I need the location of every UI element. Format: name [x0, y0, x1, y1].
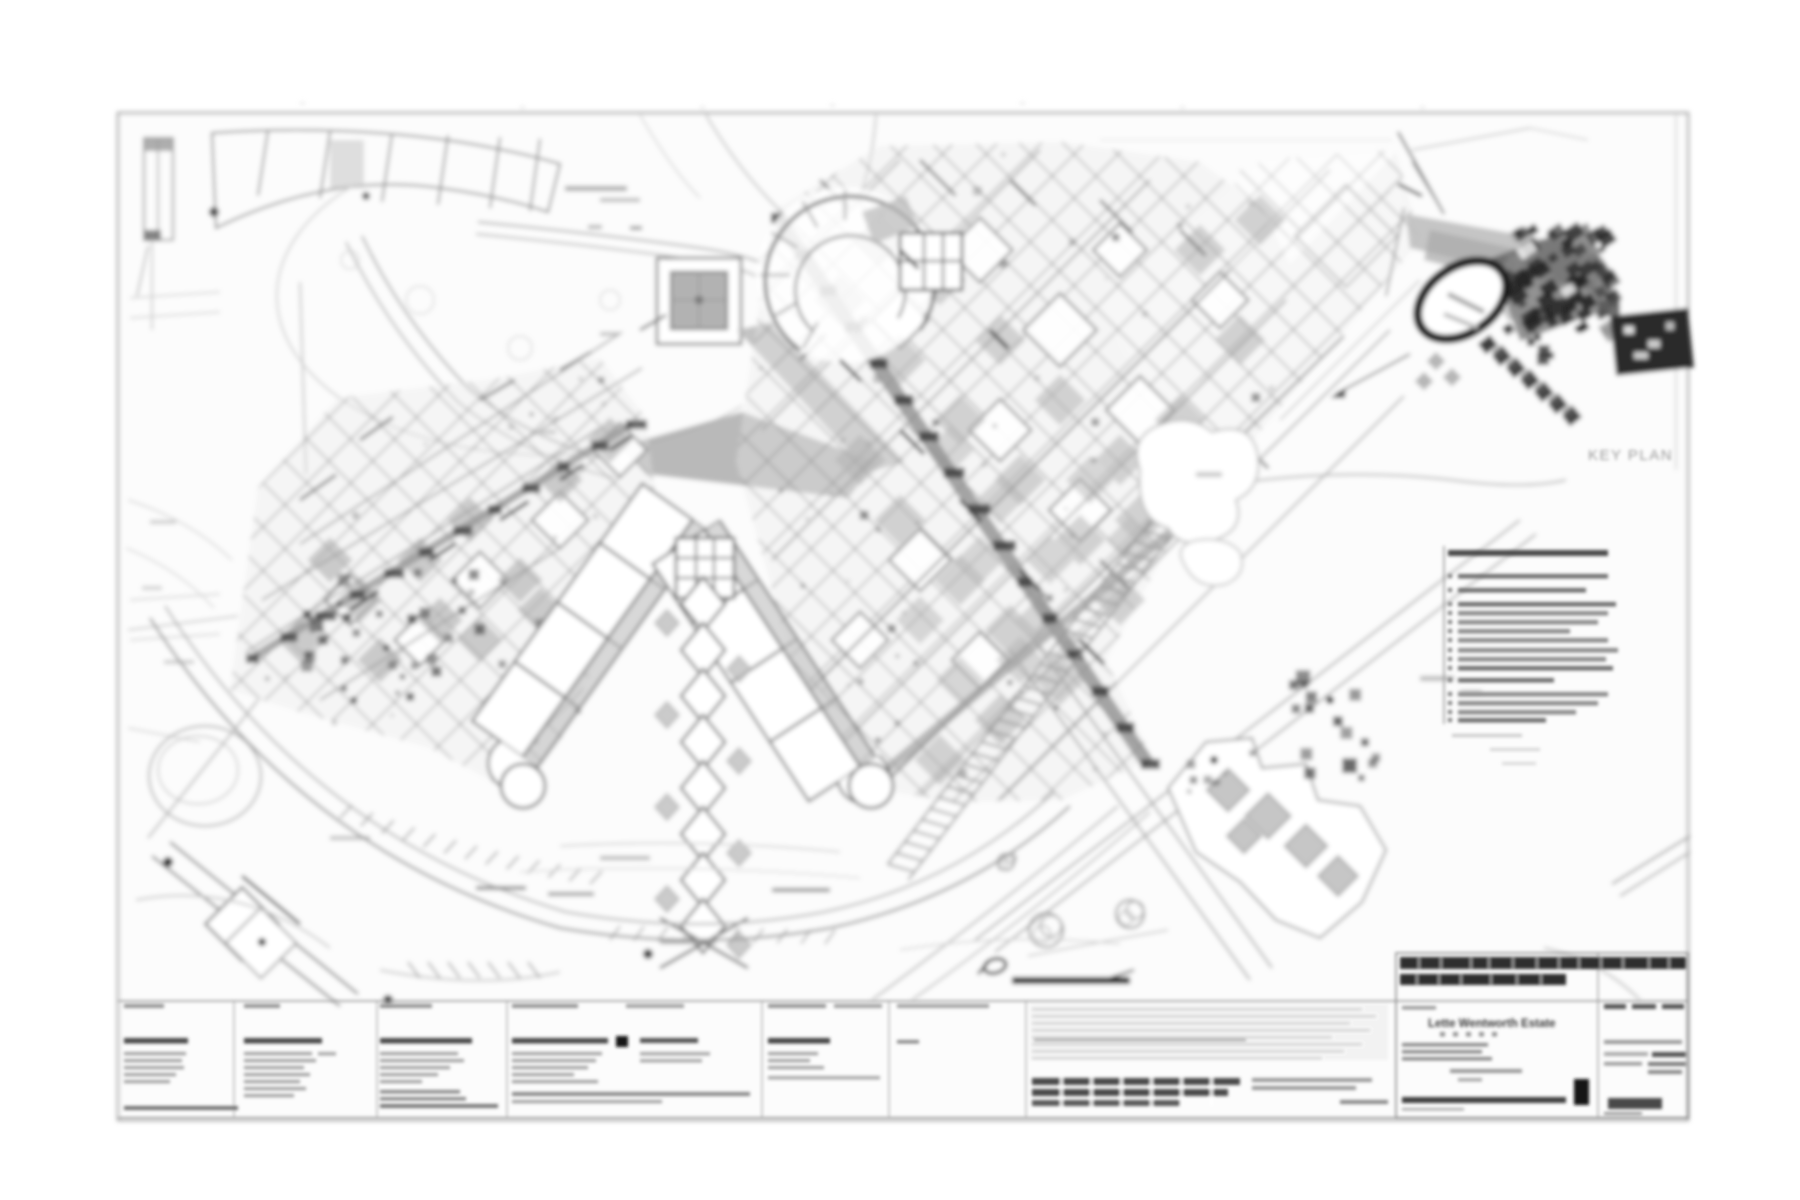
svg-text:Lette Wentworth Estate: Lette Wentworth Estate [1428, 1018, 1556, 1030]
svg-text:KEY PLAN: KEY PLAN [1588, 447, 1673, 464]
